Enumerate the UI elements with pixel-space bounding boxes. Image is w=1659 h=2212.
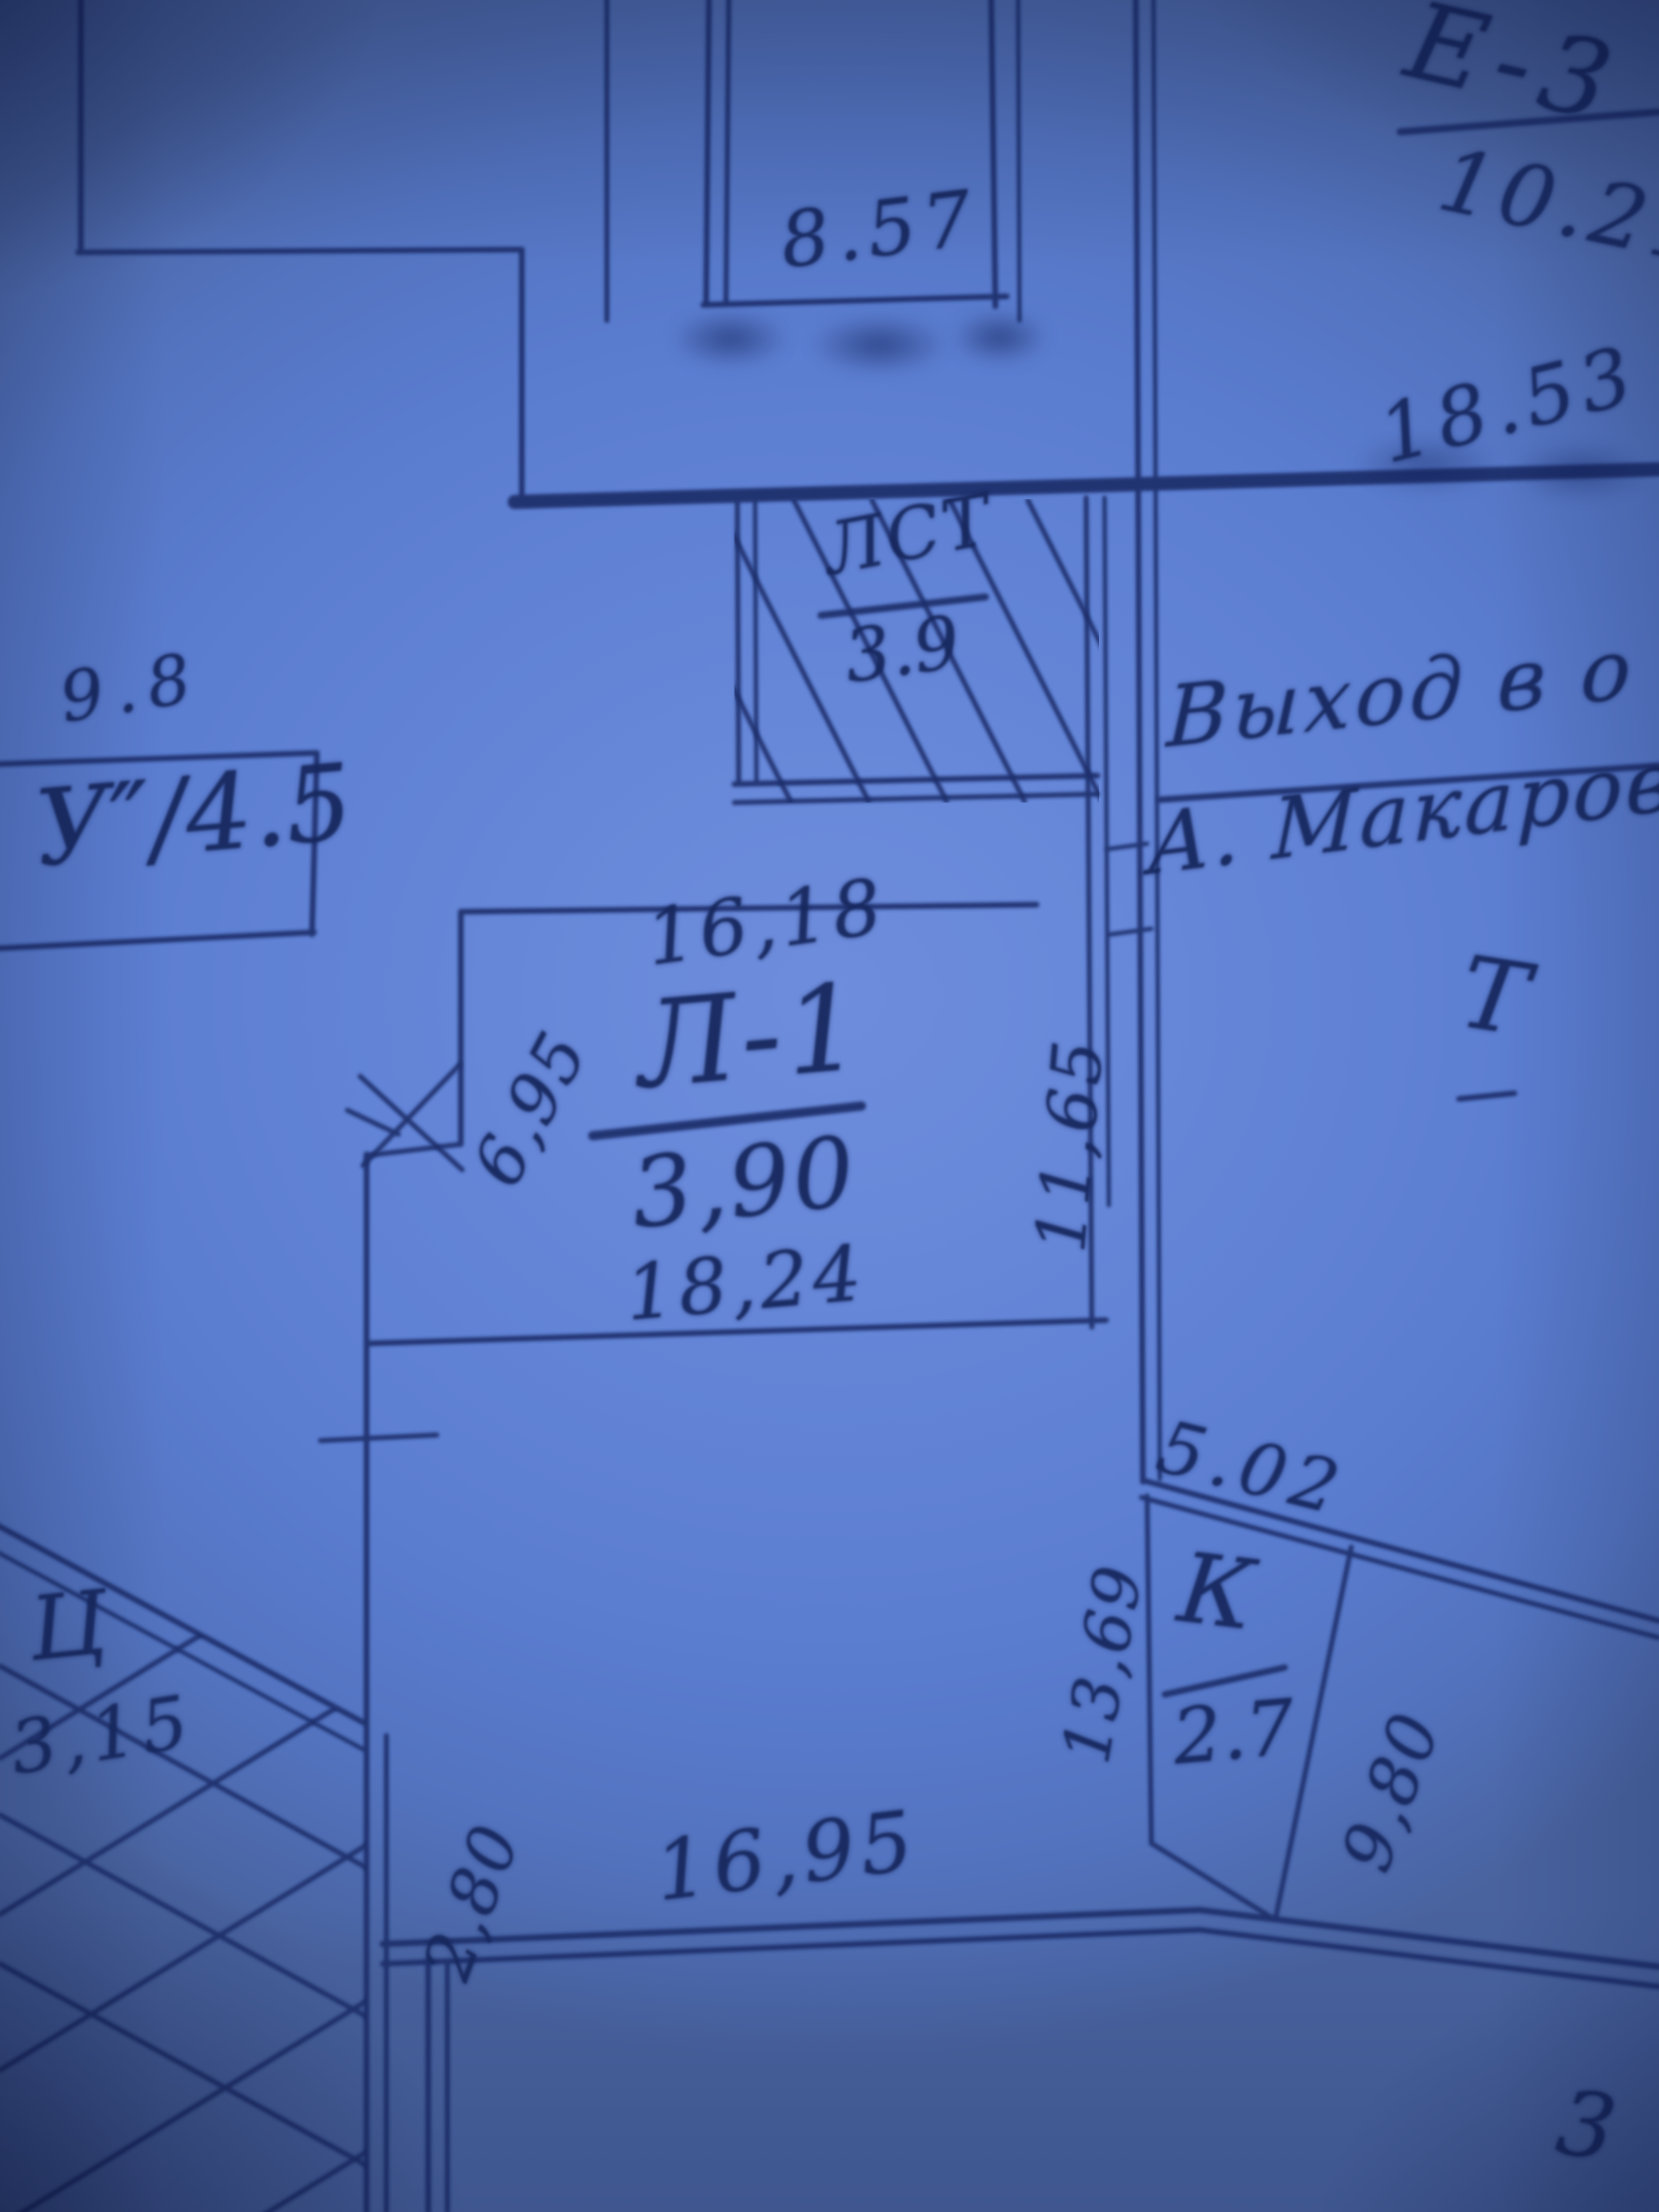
dimension-9-8: 9.8 (55, 643, 206, 732)
room-label-l1: Л-1 (632, 967, 870, 1105)
room-label-k: К (1173, 1540, 1259, 1645)
area-value-l1: 3,90 (627, 1124, 861, 1244)
blueprint-photo: Е-3 10.21 18.53 8.57 ЛСТ 3.9 Выход в о А… (0, 0, 1659, 2212)
ghost-smudge (950, 309, 1049, 366)
stairwell-area-value: 3.9 (840, 606, 964, 694)
ghost-smudge (808, 313, 950, 376)
area-value-k: 2.7 (1170, 1689, 1298, 1777)
ghost-smudge (1510, 441, 1652, 502)
dimension-11-65: 11,65 (1027, 1034, 1113, 1255)
ghost-smudge (670, 309, 791, 369)
dimension-8-57: 8.57 (776, 180, 983, 280)
zone-label-ts: Ц (26, 1579, 111, 1675)
room-label-u: У″/4.5 (31, 749, 357, 881)
dimension-18-24: 18,24 (622, 1235, 868, 1332)
